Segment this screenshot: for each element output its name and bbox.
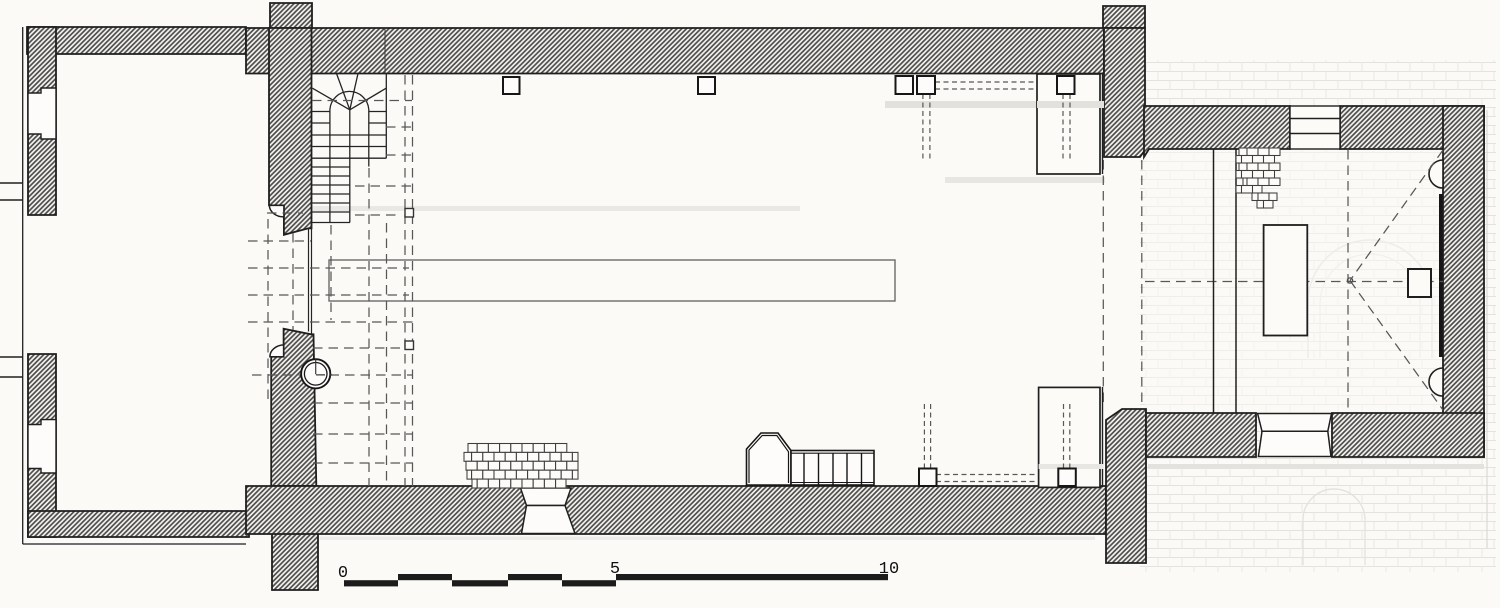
- svg-text:10: 10: [879, 560, 899, 579]
- svg-text:5: 5: [610, 560, 620, 579]
- svg-text:0: 0: [338, 564, 348, 583]
